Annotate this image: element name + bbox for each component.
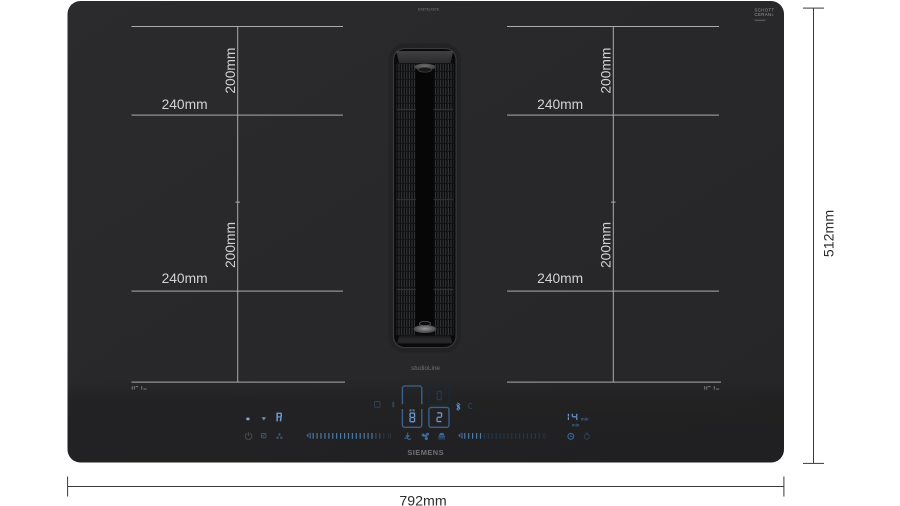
svg-text:200mm: 200mm [223, 48, 238, 94]
svg-text:200mm: 200mm [599, 222, 614, 268]
svg-text:CERAN®: CERAN® [755, 12, 775, 17]
svg-text:240mm: 240mm [537, 97, 583, 112]
svg-text:792mm: 792mm [399, 493, 446, 506]
svg-text:200mm: 200mm [223, 222, 238, 268]
svg-text:240mm: 240mm [162, 271, 208, 286]
svg-text:240mm: 240mm [537, 271, 583, 286]
svg-text:200mm: 200mm [599, 48, 614, 94]
svg-text:SIEMENS: SIEMENS [407, 448, 444, 457]
svg-text:min: min [572, 422, 580, 427]
svg-text:studioLine: studioLine [411, 365, 440, 372]
svg-text:240mm: 240mm [162, 97, 208, 112]
svg-text:512mm: 512mm [822, 210, 838, 257]
svg-text:min: min [581, 417, 589, 422]
svg-text:EX875LX67E: EX875LX67E [418, 8, 439, 12]
